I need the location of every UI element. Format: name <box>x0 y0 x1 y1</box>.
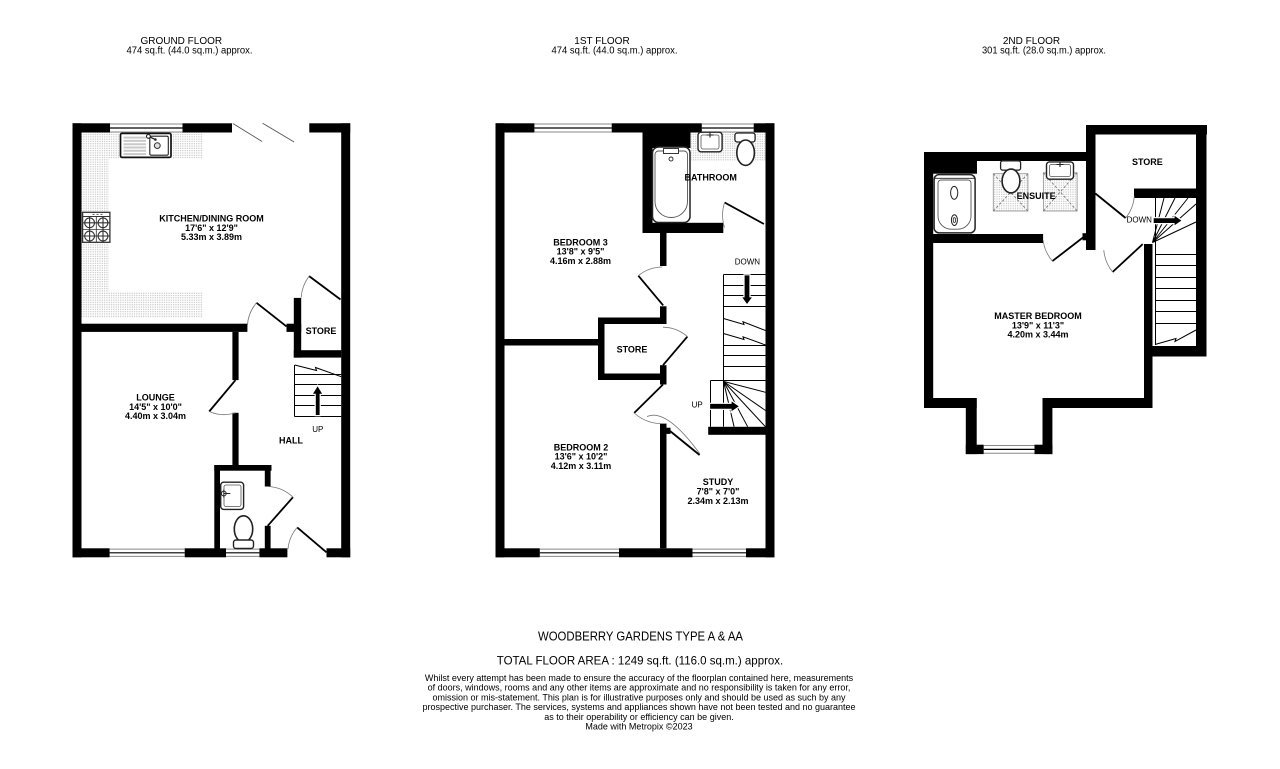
svg-text:omission or mis-statement. Thi: omission or mis-statement. This plan is … <box>432 692 846 702</box>
svg-text:474 sq.ft. (44.0 sq.m.) approx: 474 sq.ft. (44.0 sq.m.) approx. <box>127 46 253 57</box>
svg-text:WOODBERRY GARDENS TYPE A & AA: WOODBERRY GARDENS TYPE A & AA <box>538 629 743 644</box>
svg-text:4.12m x 3.11m: 4.12m x 3.11m <box>551 461 612 471</box>
svg-text:STORE: STORE <box>1132 157 1163 167</box>
svg-text:STORE: STORE <box>617 345 648 355</box>
svg-text:ENSUITE: ENSUITE <box>1017 191 1056 201</box>
svg-text:4.16m x 2.88m: 4.16m x 2.88m <box>550 256 611 266</box>
svg-text:of doors, windows, rooms and a: of doors, windows, rooms and any other i… <box>428 683 851 693</box>
svg-text:prospective purchaser. The ser: prospective purchaser. The services, sys… <box>422 702 855 712</box>
svg-text:2.34m x 2.13m: 2.34m x 2.13m <box>687 496 748 506</box>
svg-text:BATHROOM: BATHROOM <box>685 172 737 182</box>
svg-text:474 sq.ft. (44.0 sq.m.) approx: 474 sq.ft. (44.0 sq.m.) approx. <box>552 46 678 57</box>
svg-text:Made with Metropix ©2023: Made with Metropix ©2023 <box>585 722 692 732</box>
svg-text:Whilst every attempt has been: Whilst every attempt has been made to en… <box>425 673 854 683</box>
svg-text:UP: UP <box>312 425 323 434</box>
svg-text:4.20m x 3.44m: 4.20m x 3.44m <box>1007 330 1068 340</box>
svg-text:HALL: HALL <box>279 435 303 445</box>
svg-text:UP: UP <box>692 401 703 410</box>
svg-text:STORE: STORE <box>306 326 337 336</box>
svg-text:5.33m x 3.89m: 5.33m x 3.89m <box>181 232 242 242</box>
svg-text:DOWN: DOWN <box>735 257 761 266</box>
svg-text:DOWN: DOWN <box>1127 216 1153 225</box>
svg-text:4.40m x 3.04m: 4.40m x 3.04m <box>125 411 186 421</box>
svg-text:as to their operability or eff: as to their operability or efficiency ca… <box>544 712 733 722</box>
svg-text:301 sq.ft. (28.0 sq.m.) approx: 301 sq.ft. (28.0 sq.m.) approx. <box>982 46 1106 57</box>
svg-text:TOTAL FLOOR AREA : 1249 sq.ft.: TOTAL FLOOR AREA : 1249 sq.ft. (116.0 sq… <box>497 654 784 668</box>
